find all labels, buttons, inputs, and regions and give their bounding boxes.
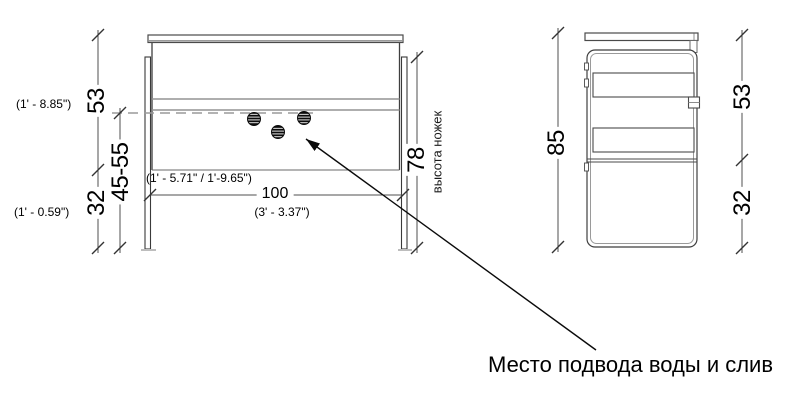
front-dim-78: 78	[403, 144, 431, 176]
side-slot-lower	[593, 128, 694, 152]
front-dimensions	[92, 29, 423, 254]
side-dim-32: 32	[729, 187, 757, 219]
side-view	[585, 33, 700, 247]
side-slot-upper	[593, 73, 694, 97]
front-dim-32-imperial: (1' - 0.59")	[14, 205, 69, 219]
water-point-left	[248, 113, 261, 126]
water-point-right	[298, 112, 311, 125]
front-dim-100-imperial: (3' - 3.37")	[254, 205, 309, 219]
front-dim-53: 53	[83, 85, 111, 117]
front-left-leg	[145, 57, 151, 249]
technical-drawing-canvas: 53 32 45-55 78 высота ножек (1' - 8.85")…	[0, 0, 800, 414]
side-countertop	[585, 33, 698, 41]
side-dim-85: 85	[543, 127, 571, 159]
front-dim-53-imperial: (1' - 8.85")	[16, 97, 71, 111]
annotation-arrow	[306, 139, 596, 350]
supply-range-imperial: (1' - 5.71" / 1'-9.65")	[146, 171, 252, 185]
side-dim-53: 53	[729, 81, 757, 113]
legs-height-caption: высота ножек	[430, 111, 445, 193]
front-body-sides	[152, 43, 400, 170]
drain-point-center	[272, 126, 285, 139]
front-dim-45-55: 45-55	[107, 140, 135, 205]
front-dim-100: 100	[257, 185, 294, 203]
water-supply-annotation: Место подвода воды и слив	[488, 352, 773, 378]
